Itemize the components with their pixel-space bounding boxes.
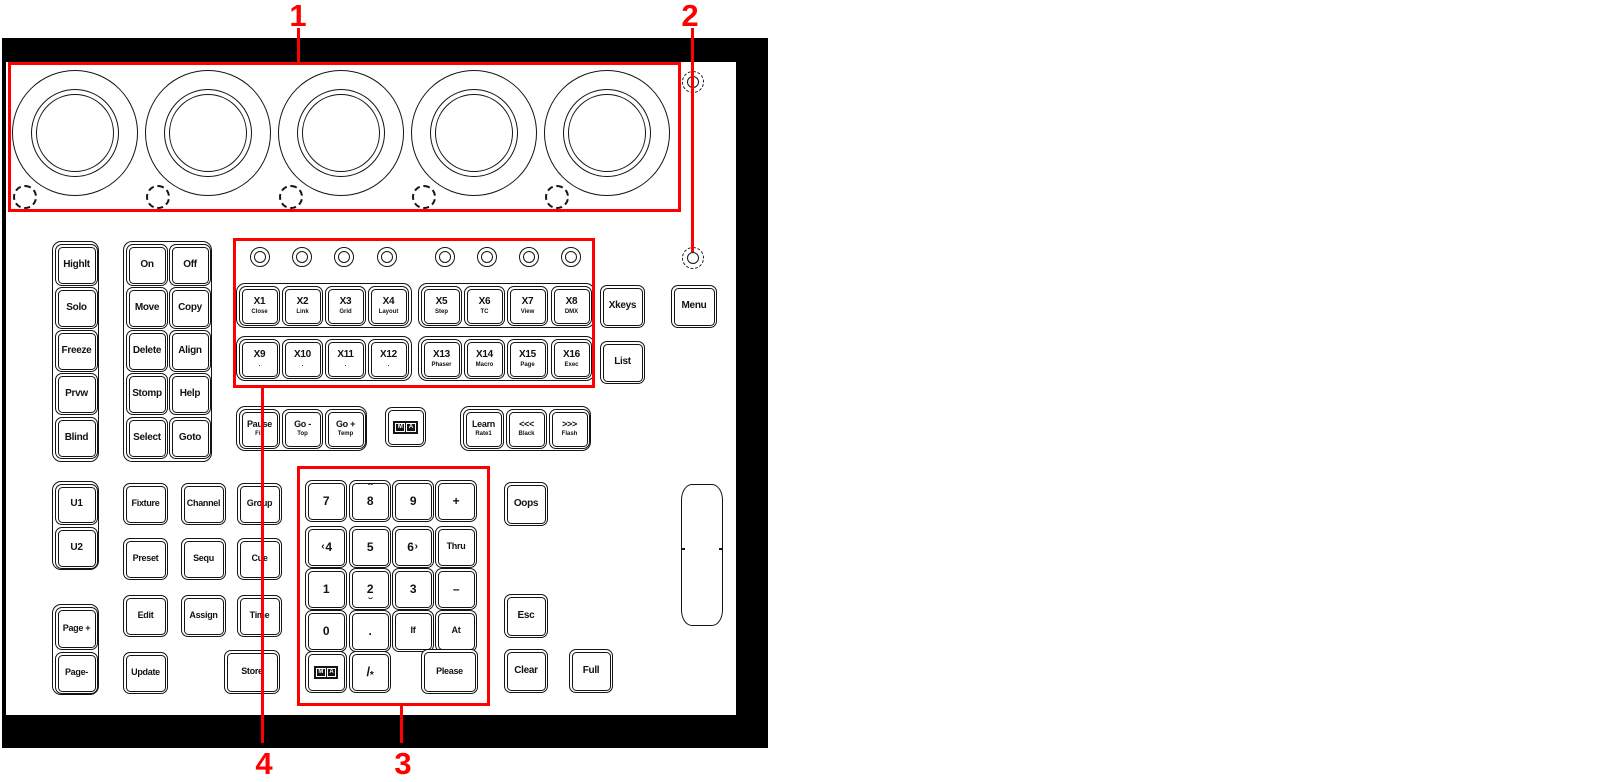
key-x11: X11. [325,339,366,379]
key-solo: Solo [55,287,98,329]
key-fixture: Fixture [123,483,168,525]
key-sequ: Sequ [181,538,226,580]
ma-logo: MA [314,666,338,679]
key-xkeys: Xkeys [600,285,645,328]
key-clear: Clear [504,649,548,693]
key-ma: MA [385,407,426,447]
attribute-encoder [519,247,539,267]
action-keys-block: On Off Move Copy Delete Align Stomp Help… [123,241,212,462]
key-learn: LearnRate1 [463,409,504,449]
key-0: 0 [305,610,347,652]
callout-line-2 [691,28,694,252]
callout-number-1: 1 [289,0,306,31]
xkeys-group-3: X9. X10. X11. X12. [236,336,412,381]
user-keys-block: U1 U2 [52,481,99,570]
xkeys-group-1: X1Close X2Link X3Grid X4Layout [236,283,412,328]
key-plus: + [435,480,477,522]
program-keys-column: Highlt Solo Freeze Prvw Blind [52,241,99,462]
key-x2: X2Link [282,286,323,326]
key-8-up: ˆ8 [349,480,391,522]
key-x3: X3Grid [325,286,366,326]
panel-frame-right [736,62,768,715]
key-x9: X9. [239,339,280,379]
key-slash-star: /* [349,651,391,693]
attribute-encoder [435,247,455,267]
attribute-encoder [561,247,581,267]
encoder-wheel [278,70,418,210]
key-move: Move [126,287,168,329]
attribute-encoder [477,247,497,267]
key-go-minus: Go -Top [282,409,323,449]
key-x1: X1Close [239,286,280,326]
key-please: Please [421,649,478,694]
key-x15: X15Page [507,339,548,379]
key-6-right: 6› [392,526,434,568]
wheel-led [412,185,436,209]
callout-number-2: 2 [681,0,698,31]
key-align: Align [169,330,211,372]
key-u1: U1 [55,484,98,525]
key-dot: . [349,610,391,652]
key-on: On [126,244,168,286]
key-x13: X13Phaser [421,339,462,379]
console-diagram: Highlt Solo Freeze Prvw Blind On Off Mov… [0,0,1600,782]
key-help: Help [169,373,211,415]
key-channel: Channel [181,483,226,525]
key-assign: Assign [181,595,226,637]
key-if: If [392,610,434,652]
encoder-wheel [544,70,684,210]
key-update: Update [123,652,168,694]
key-3: 3 [392,568,434,610]
key-highlt: Highlt [55,244,98,286]
key-7: 7 [305,480,347,522]
key-blind: Blind [55,417,98,459]
xkeys-group-4: X13Phaser X14Macro X15Page X16Exec [418,336,595,381]
key-u2: U2 [55,527,98,569]
key-page-minus: Page- [55,652,98,694]
key-preset: Preset [123,538,168,580]
wheel-led [146,185,170,209]
panel-frame-top [2,38,768,62]
callout-line-1 [297,28,300,62]
callout-line-3 [400,703,403,743]
encoder-wheel [411,70,551,210]
key-ma-keypad: MA [305,651,347,693]
key-x5: X5Step [421,286,462,326]
key-back: <<<Black [506,409,547,449]
key-at: At [435,610,477,652]
attribute-encoder [292,247,312,267]
key-esc: Esc [504,594,548,638]
playback-learn-group: LearnRate1 <<<Black >>>Flash [460,406,591,451]
encoder-wheel [145,70,285,210]
panel-frame-left [2,62,6,715]
scroll-wheel [681,484,723,626]
key-oops: Oops [504,482,548,526]
wheel-led [279,185,303,209]
attribute-encoder [334,247,354,267]
key-store: Store [224,650,280,694]
xkeys-group-2: X5Step X6TC X7View X8DMX [418,283,595,328]
key-edit: Edit [123,595,168,637]
wheel-led [545,185,569,209]
key-group: Group [237,483,282,525]
playback-go-group: PauseFix Go -Top Go +Temp [236,406,367,451]
key-freeze: Freeze [55,330,98,372]
key-list: List [600,341,645,384]
key-page-plus: Page + [55,607,98,650]
callout-number-4: 4 [255,748,272,779]
key-full: Full [569,649,613,693]
attribute-encoder [250,247,270,267]
panel-frame-bottom [2,715,768,748]
key-1: 1 [305,568,347,610]
key-delete: Delete [126,330,168,372]
callout-line-4 [261,386,264,743]
key-x14: X14Macro [464,339,505,379]
encoder-wheel [12,70,152,210]
key-x7: X7View [507,286,548,326]
key-flash: >>>Flash [549,409,590,449]
key-x10: X10. [282,339,323,379]
key-x4: X4Layout [368,286,409,326]
key-copy: Copy [169,287,211,329]
key-x6: X6TC [464,286,505,326]
key-off: Off [169,244,211,286]
key-stomp: Stomp [126,373,168,415]
key-minus: – [435,568,477,610]
key-4-left: ‹4 [305,526,347,568]
key-pause: PauseFix [239,409,280,449]
key-select: Select [126,417,168,459]
key-go-plus: Go +Temp [325,409,366,449]
ma-logo: MA [393,421,417,434]
key-prvw: Prvw [55,373,98,415]
callout-number-3: 3 [394,748,411,779]
key-x16: X16Exec [551,339,592,379]
page-keys-block: Page + Page- [52,604,99,695]
key-x12: X12. [368,339,409,379]
key-cue: Cue [237,538,282,580]
key-5: 5 [349,526,391,568]
wheel-led [13,185,37,209]
key-goto: Goto [169,417,211,459]
key-2-down: 2ˇ [349,568,391,610]
key-9: 9 [392,480,434,522]
key-time: Time [237,595,282,637]
attribute-encoder [377,247,397,267]
key-x8: X8DMX [551,286,592,326]
key-menu: Menu [671,285,717,328]
key-thru: Thru [435,526,477,568]
